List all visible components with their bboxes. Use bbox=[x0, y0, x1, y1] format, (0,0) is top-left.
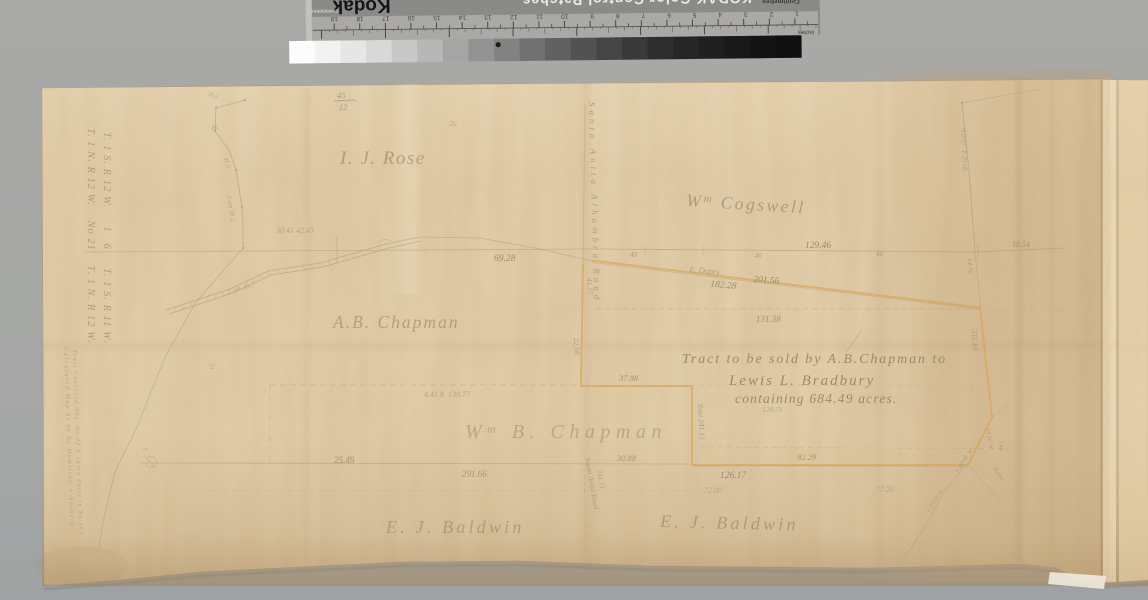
svg-text:11: 11 bbox=[536, 13, 543, 20]
svg-text:5: 5 bbox=[692, 11, 696, 18]
svg-text:131.38: 131.38 bbox=[756, 314, 781, 324]
svg-text:92.29: 92.29 bbox=[797, 452, 817, 462]
svg-text:E. J. Baldwin: E. J. Baldwin bbox=[385, 517, 525, 537]
svg-text:77.25: 77.25 bbox=[876, 485, 894, 494]
svg-text:14: 14 bbox=[458, 14, 466, 21]
svg-text:I. J. Rose: I. J. Rose bbox=[339, 148, 426, 169]
svg-text:16: 16 bbox=[407, 14, 415, 21]
svg-text:9: 9 bbox=[590, 12, 594, 19]
svg-text:10: 10 bbox=[561, 12, 569, 19]
svg-text:1: 1 bbox=[795, 10, 799, 17]
svg-text:T. 1 N. R 12 W. No 21 T.: T. 1 N. R 12 W. No 21 T. 1 N. R 12 W. bbox=[85, 128, 96, 343]
svg-text:41.77: 41.77 bbox=[585, 278, 595, 295]
svg-text:40: 40 bbox=[876, 250, 884, 258]
svg-text:72.00: 72.00 bbox=[704, 486, 722, 495]
svg-text:12: 12 bbox=[510, 13, 518, 20]
svg-text:Lewis L. Bradbury: Lewis L. Bradbury bbox=[728, 373, 875, 389]
svg-text:14.76: 14.76 bbox=[965, 258, 974, 275]
svg-text:6: 6 bbox=[667, 11, 671, 18]
svg-text:40: 40 bbox=[630, 251, 638, 259]
svg-text:12: 12 bbox=[339, 102, 348, 112]
svg-text:291.66: 291.66 bbox=[462, 469, 487, 479]
svg-text:120.71: 120.71 bbox=[762, 405, 783, 414]
svg-text:22.56: 22.56 bbox=[572, 338, 582, 355]
svg-text:Centimetres: Centimetres bbox=[762, 0, 800, 5]
svg-text:30.41 42.43: 30.41 42.43 bbox=[275, 226, 314, 235]
svg-text:126.17: 126.17 bbox=[720, 471, 747, 481]
svg-text:Inches: Inches bbox=[798, 29, 815, 35]
svg-text:13: 13 bbox=[484, 13, 492, 20]
svg-text:4: 4 bbox=[718, 11, 722, 18]
svg-text:25.49: 25.49 bbox=[334, 455, 355, 465]
svg-text:E. J. Baldwin: E. J. Baldwin bbox=[659, 511, 799, 535]
svg-text:T. 1 S. R 12 W. 1 6: T. 1 S. R 12 W. 1 6 T. 1 S. R 11 W. bbox=[101, 132, 112, 343]
svg-text:26: 26 bbox=[449, 119, 457, 128]
svg-text:4.41.8 139.77: 4.41.8 139.77 bbox=[424, 390, 471, 399]
svg-text:129.46: 129.46 bbox=[805, 241, 831, 251]
svg-text:3: 3 bbox=[744, 10, 748, 17]
svg-text:7: 7 bbox=[641, 12, 645, 19]
svg-text:KODAK Color Control Patches: KODAK Color Control Patches bbox=[522, 0, 752, 9]
svg-text:Centimetres: Centimetres bbox=[310, 8, 338, 14]
svg-text:containing 684.49 acres.: containing 684.49 acres. bbox=[735, 391, 898, 406]
svg-text:2: 2 bbox=[769, 10, 773, 17]
svg-text:69.28: 69.28 bbox=[494, 254, 516, 264]
svg-text:201.56: 201.56 bbox=[753, 275, 780, 287]
svg-text:30.88: 30.88 bbox=[616, 453, 637, 463]
svg-text:16: 16 bbox=[211, 124, 219, 132]
svg-text:8: 8 bbox=[616, 12, 620, 19]
svg-text:A.B. Chapman: A.B. Chapman bbox=[332, 312, 460, 332]
svg-text:45: 45 bbox=[337, 90, 346, 100]
svg-text:15: 15 bbox=[433, 14, 441, 21]
svg-text:37.88: 37.88 bbox=[618, 373, 639, 383]
svg-text:Kodak: Kodak bbox=[332, 0, 391, 17]
svg-text:40: 40 bbox=[755, 252, 763, 260]
svg-text:18.54: 18.54 bbox=[1012, 240, 1030, 249]
svg-text:Tract to be sold by A.B.Chapma: Tract to be sold by A.B.Chapman to bbox=[682, 352, 947, 367]
svg-text:311.10: 311.10 bbox=[970, 329, 980, 351]
